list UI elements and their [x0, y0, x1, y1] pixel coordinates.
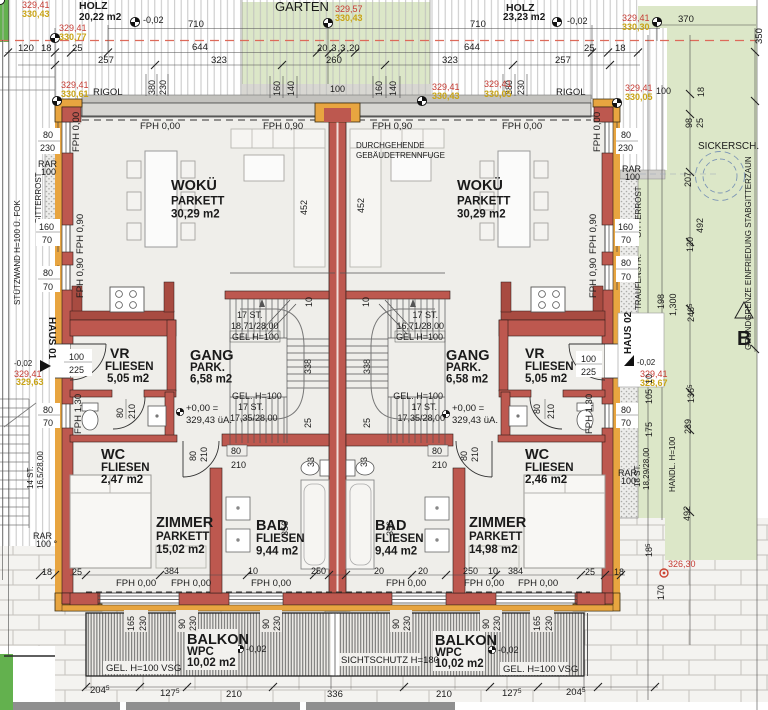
svg-text:100: 100 — [581, 354, 596, 364]
svg-text:GEL. H=100: GEL. H=100 — [393, 391, 443, 401]
svg-text:257: 257 — [555, 55, 571, 66]
svg-text:330,05: 330,05 — [625, 92, 653, 102]
svg-text:10: 10 — [361, 297, 371, 307]
svg-text:-0,02: -0,02 — [14, 359, 33, 368]
svg-text:20,3,3,20: 20,3,3,20 — [317, 43, 360, 54]
svg-text:210: 210 — [546, 404, 556, 419]
svg-text:230: 230 — [158, 80, 168, 95]
svg-text:170: 170 — [656, 585, 666, 600]
svg-text:80: 80 — [231, 446, 241, 456]
svg-text:20: 20 — [418, 566, 428, 576]
svg-text:9,44 m2: 9,44 m2 — [256, 546, 298, 558]
svg-text:PARKETT: PARKETT — [469, 531, 522, 543]
svg-text:452: 452 — [356, 198, 366, 213]
svg-text:452: 452 — [299, 200, 309, 215]
svg-text:FPH 0,90: FPH 0,90 — [588, 214, 599, 254]
svg-text:210: 210 — [470, 447, 480, 462]
svg-text:160: 160 — [272, 81, 282, 96]
svg-text:18 ST.: 18 ST. — [633, 464, 642, 487]
svg-text:350: 350 — [754, 28, 765, 44]
svg-text:WOKÜ: WOKÜ — [457, 177, 503, 194]
svg-text:GEL H=100: GEL H=100 — [232, 332, 279, 342]
svg-text:RIGOL: RIGOL — [93, 87, 123, 98]
svg-text:20: 20 — [374, 566, 384, 576]
svg-text:160: 160 — [39, 222, 54, 232]
svg-text:70: 70 — [42, 235, 52, 245]
svg-text:250: 250 — [311, 566, 326, 576]
svg-text:80: 80 — [188, 451, 198, 461]
svg-text:384: 384 — [164, 566, 179, 576]
svg-text:20,22 m2: 20,22 m2 — [79, 12, 122, 23]
svg-text:-0,02: -0,02 — [498, 645, 519, 655]
svg-text:WOKÜ: WOKÜ — [171, 177, 217, 194]
svg-text:18: 18 — [41, 43, 52, 54]
svg-text:5,05 m2: 5,05 m2 — [107, 373, 149, 385]
svg-text:198: 198 — [656, 294, 666, 309]
svg-text:100: 100 — [41, 167, 56, 177]
svg-text:GEBÄUDETRENNFUGE: GEBÄUDETRENNFUGE — [356, 151, 445, 160]
svg-text:175: 175 — [644, 422, 654, 437]
svg-text:33: 33 — [306, 457, 316, 467]
svg-text:-0,02: -0,02 — [246, 644, 267, 654]
svg-text:323: 323 — [211, 55, 227, 66]
svg-text:90: 90 — [177, 619, 187, 629]
svg-text:FPH 0,00: FPH 0,00 — [171, 578, 211, 589]
svg-text:FPH 0,90: FPH 0,90 — [75, 214, 86, 254]
svg-text:FLIESEN: FLIESEN — [375, 533, 424, 545]
svg-text:-0,02: -0,02 — [567, 16, 588, 26]
svg-text:98: 98 — [684, 118, 694, 128]
svg-text:160: 160 — [374, 81, 384, 96]
svg-text:17 ST.: 17 ST. — [412, 310, 438, 320]
svg-text:STÜTZWAND H=100 Ü. FOK: STÜTZWAND H=100 Ü. FOK — [13, 200, 22, 305]
svg-text:2,47 m2: 2,47 m2 — [101, 474, 143, 486]
svg-text:VR: VR — [110, 345, 129, 361]
svg-text:330,05: 330,05 — [484, 89, 512, 99]
svg-text:FPH 0,90: FPH 0,90 — [75, 258, 86, 298]
svg-text:PARK.: PARK. — [190, 362, 225, 374]
svg-text:329,43 üA.: 329,43 üA. — [186, 415, 232, 426]
svg-text:230: 230 — [618, 143, 633, 153]
svg-text:370: 370 — [678, 14, 694, 25]
svg-text:FPH 0,90: FPH 0,90 — [372, 121, 412, 132]
svg-text:90: 90 — [261, 619, 271, 629]
svg-text:+0,00 =: +0,00 = — [452, 403, 485, 414]
svg-text:100: 100 — [69, 352, 84, 362]
svg-text:80: 80 — [621, 130, 631, 140]
svg-text:14 ST.: 14 ST. — [26, 466, 35, 489]
svg-text:80: 80 — [115, 408, 125, 418]
svg-text:120: 120 — [18, 43, 34, 54]
svg-text:210: 210 — [199, 447, 209, 462]
svg-text:HAUS 02: HAUS 02 — [623, 311, 634, 354]
svg-text:165: 165 — [126, 616, 136, 631]
svg-text:GEL. H=100 VSG: GEL. H=100 VSG — [106, 663, 181, 674]
svg-text:330,77: 330,77 — [59, 32, 87, 42]
svg-text:SICHTSCHUTZ H=180: SICHTSCHUTZ H=180 — [341, 655, 439, 666]
svg-text:FLIESEN: FLIESEN — [105, 361, 154, 373]
svg-text:FPH 1,30: FPH 1,30 — [73, 394, 84, 434]
svg-text:ZIMMER: ZIMMER — [469, 515, 527, 531]
svg-text:23,23 m2: 23,23 m2 — [503, 12, 546, 23]
svg-text:2,46 m2: 2,46 m2 — [525, 474, 567, 486]
svg-text:FPH 0,00: FPH 0,00 — [386, 578, 426, 589]
svg-text:HAUS 01: HAUS 01 — [46, 317, 57, 360]
svg-text:14,98 m2: 14,98 m2 — [469, 544, 518, 556]
svg-text:140: 140 — [388, 81, 398, 96]
svg-text:ZIMMER: ZIMMER — [156, 515, 214, 531]
svg-text:25: 25 — [72, 43, 83, 54]
svg-text:VR: VR — [525, 345, 544, 361]
svg-text:PARKETT: PARKETT — [171, 196, 224, 208]
svg-text:492: 492 — [695, 218, 705, 233]
svg-text:6,58 m2: 6,58 m2 — [446, 374, 488, 386]
svg-text:FPH 0,00: FPH 0,00 — [140, 121, 180, 132]
svg-text:9,44 m2: 9,44 m2 — [375, 546, 417, 558]
svg-text:80: 80 — [43, 405, 53, 415]
svg-text:165: 165 — [532, 616, 542, 631]
svg-text:WC: WC — [525, 447, 550, 463]
svg-text:330,43: 330,43 — [22, 9, 50, 19]
svg-text:PARKETT: PARKETT — [457, 196, 510, 208]
svg-text:230: 230 — [492, 616, 502, 631]
svg-text:FPH 0,90: FPH 0,90 — [588, 258, 599, 298]
svg-text:FPH 0,00: FPH 0,00 — [502, 121, 542, 132]
svg-text:336: 336 — [327, 689, 343, 700]
svg-text:-0,02: -0,02 — [143, 15, 164, 25]
svg-text:GARTEN: GARTEN — [275, 0, 329, 14]
svg-text:17 ST.: 17 ST. — [237, 310, 263, 320]
svg-text:25: 25 — [303, 418, 313, 428]
svg-text:FLIESEN: FLIESEN — [101, 462, 150, 474]
svg-text:70: 70 — [43, 282, 53, 292]
svg-text:18: 18 — [696, 87, 706, 97]
svg-text:80: 80 — [43, 130, 53, 140]
svg-text:230: 230 — [544, 616, 554, 631]
svg-text:492: 492 — [682, 506, 692, 521]
svg-text:DURCHGEHENDE: DURCHGEHENDE — [356, 141, 424, 150]
svg-text:25: 25 — [72, 567, 82, 577]
svg-text:17 ST.: 17 ST. — [411, 402, 437, 412]
svg-text:70: 70 — [621, 418, 631, 428]
svg-text:80: 80 — [532, 404, 542, 414]
svg-text:10: 10 — [304, 297, 314, 307]
svg-text:250: 250 — [463, 566, 478, 576]
svg-text:16,5/28,00: 16,5/28,00 — [36, 451, 45, 489]
svg-text:326,30: 326,30 — [668, 559, 696, 569]
svg-text:338: 338 — [362, 359, 372, 374]
svg-text:HOLZ: HOLZ — [79, 0, 108, 12]
svg-text:FPH 0,00: FPH 0,00 — [116, 578, 156, 589]
svg-text:384: 384 — [508, 566, 523, 576]
svg-text:6,58 m2: 6,58 m2 — [190, 374, 232, 386]
svg-text:210: 210 — [432, 460, 447, 470]
svg-text:230: 230 — [138, 616, 148, 631]
svg-text:210: 210 — [231, 460, 246, 470]
svg-text:644: 644 — [192, 42, 208, 53]
svg-text:329,63: 329,63 — [16, 377, 44, 387]
svg-text:FPH 0,00: FPH 0,00 — [464, 578, 504, 589]
svg-text:338: 338 — [303, 359, 313, 374]
svg-text:710: 710 — [470, 19, 486, 30]
svg-text:80: 80 — [621, 405, 631, 415]
svg-text:30,29 m2: 30,29 m2 — [171, 209, 220, 221]
svg-text:18: 18 — [42, 567, 52, 577]
svg-text:10: 10 — [248, 566, 258, 576]
svg-text:FPH 0,90: FPH 0,90 — [263, 121, 303, 132]
svg-text:10: 10 — [644, 374, 654, 384]
svg-text:FPH 0,00: FPH 0,00 — [592, 112, 603, 152]
svg-text:18: 18 — [615, 43, 626, 54]
svg-text:18: 18 — [614, 567, 624, 577]
svg-text:80: 80 — [621, 258, 631, 268]
svg-text:230: 230 — [516, 80, 526, 95]
svg-text:1,300: 1,300 — [668, 293, 678, 316]
svg-text:330,61: 330,61 — [61, 89, 89, 99]
svg-text:25: 25 — [585, 567, 595, 577]
svg-text:25: 25 — [695, 118, 705, 128]
svg-text:100: 100 — [625, 172, 640, 182]
svg-text:225: 225 — [69, 365, 84, 375]
svg-text:644: 644 — [464, 42, 480, 53]
svg-text:105: 105 — [644, 389, 654, 404]
svg-text:260: 260 — [326, 55, 342, 66]
svg-text:70: 70 — [621, 272, 631, 282]
svg-text:GEL H=100: GEL H=100 — [396, 332, 443, 342]
svg-text:80: 80 — [459, 451, 469, 461]
svg-text:GEL. H=100: GEL. H=100 — [232, 391, 282, 401]
svg-text:323: 323 — [442, 55, 458, 66]
svg-text:SICKERSCH.: SICKERSCH. — [698, 141, 759, 152]
svg-text:239: 239 — [683, 419, 693, 434]
svg-text:+0,00 =: +0,00 = — [186, 403, 219, 414]
svg-text:100: 100 — [656, 86, 671, 96]
svg-text:18,29/28,00: 18,29/28,00 — [642, 447, 651, 490]
svg-text:17 ST.: 17 ST. — [238, 402, 264, 412]
svg-text:90: 90 — [481, 619, 491, 629]
svg-text:207: 207 — [683, 172, 693, 187]
svg-text:25: 25 — [584, 43, 595, 54]
svg-text:160: 160 — [618, 222, 633, 232]
svg-text:356: 356 — [385, 521, 395, 536]
svg-text:FPH 0,00: FPH 0,00 — [518, 578, 558, 589]
svg-text:FPH 0,00: FPH 0,00 — [251, 578, 291, 589]
svg-text:230: 230 — [402, 616, 412, 631]
svg-text:FPH 0,00: FPH 0,00 — [71, 112, 82, 152]
svg-text:RIGOL: RIGOL — [556, 87, 586, 98]
svg-text:17,35/28,00: 17,35/28,00 — [397, 413, 445, 423]
svg-text:225: 225 — [581, 367, 596, 377]
svg-text:25: 25 — [362, 418, 372, 428]
svg-text:10: 10 — [488, 566, 498, 576]
svg-text:PARK.: PARK. — [446, 362, 481, 374]
svg-text:70: 70 — [621, 235, 631, 245]
svg-text:GITTERROST: GITTERROST — [34, 172, 43, 224]
svg-text:B: B — [737, 328, 751, 350]
svg-text:GRUNDGRENZE EINFRIEDUNG STABGI: GRUNDGRENZE EINFRIEDUNG STABGITTERZAUN — [744, 156, 753, 350]
svg-text:5,05 m2: 5,05 m2 — [525, 373, 567, 385]
svg-text:FPH 1,30: FPH 1,30 — [584, 394, 595, 434]
svg-text:-0,02: -0,02 — [637, 358, 656, 367]
svg-text:17,35/28,00: 17,35/28,00 — [230, 413, 278, 423]
svg-text:380: 380 — [147, 80, 157, 95]
svg-text:140: 140 — [286, 81, 296, 96]
svg-text:10,02 m2: 10,02 m2 — [187, 657, 236, 669]
svg-text:100: 100 — [330, 84, 345, 94]
svg-text:210: 210 — [127, 404, 137, 419]
svg-text:80: 80 — [43, 268, 53, 278]
svg-text:18,71/28,00: 18,71/28,00 — [231, 321, 279, 331]
svg-text:90: 90 — [391, 619, 401, 629]
svg-text:HANDL. H=100: HANDL. H=100 — [668, 436, 677, 492]
svg-text:329,41: 329,41 — [484, 79, 512, 89]
svg-text:210: 210 — [226, 689, 242, 700]
svg-text:100 °: 100 ° — [36, 539, 58, 549]
svg-text:30,29 m2: 30,29 m2 — [457, 209, 506, 221]
svg-text:230: 230 — [272, 616, 282, 631]
svg-text:FLIESEN: FLIESEN — [525, 462, 574, 474]
svg-text:330,30: 330,30 — [622, 22, 650, 32]
svg-text:230: 230 — [40, 143, 55, 153]
svg-text:FLIESEN: FLIESEN — [525, 361, 574, 373]
svg-text:80: 80 — [432, 446, 442, 456]
svg-text:330,43: 330,43 — [335, 13, 363, 23]
svg-text:16,71/28,00: 16,71/28,00 — [396, 321, 444, 331]
svg-text:230: 230 — [188, 616, 198, 631]
svg-text:PARKETT: PARKETT — [156, 531, 209, 543]
svg-text:210: 210 — [436, 689, 452, 700]
svg-text:330,43: 330,43 — [432, 91, 460, 101]
svg-text:329,43 üA.: 329,43 üA. — [452, 415, 498, 426]
svg-text:120: 120 — [685, 237, 695, 252]
svg-text:33: 33 — [359, 457, 369, 467]
svg-text:WC: WC — [101, 447, 126, 463]
svg-text:15,02 m2: 15,02 m2 — [156, 544, 205, 556]
svg-text:257: 257 — [98, 55, 114, 66]
svg-text:10,02 m2: 10,02 m2 — [435, 658, 484, 670]
svg-text:356: 356 — [280, 521, 290, 536]
svg-text:710: 710 — [188, 19, 204, 30]
svg-text:GEL. H=100 VSG: GEL. H=100 VSG — [503, 664, 578, 675]
svg-text:70: 70 — [43, 418, 53, 428]
